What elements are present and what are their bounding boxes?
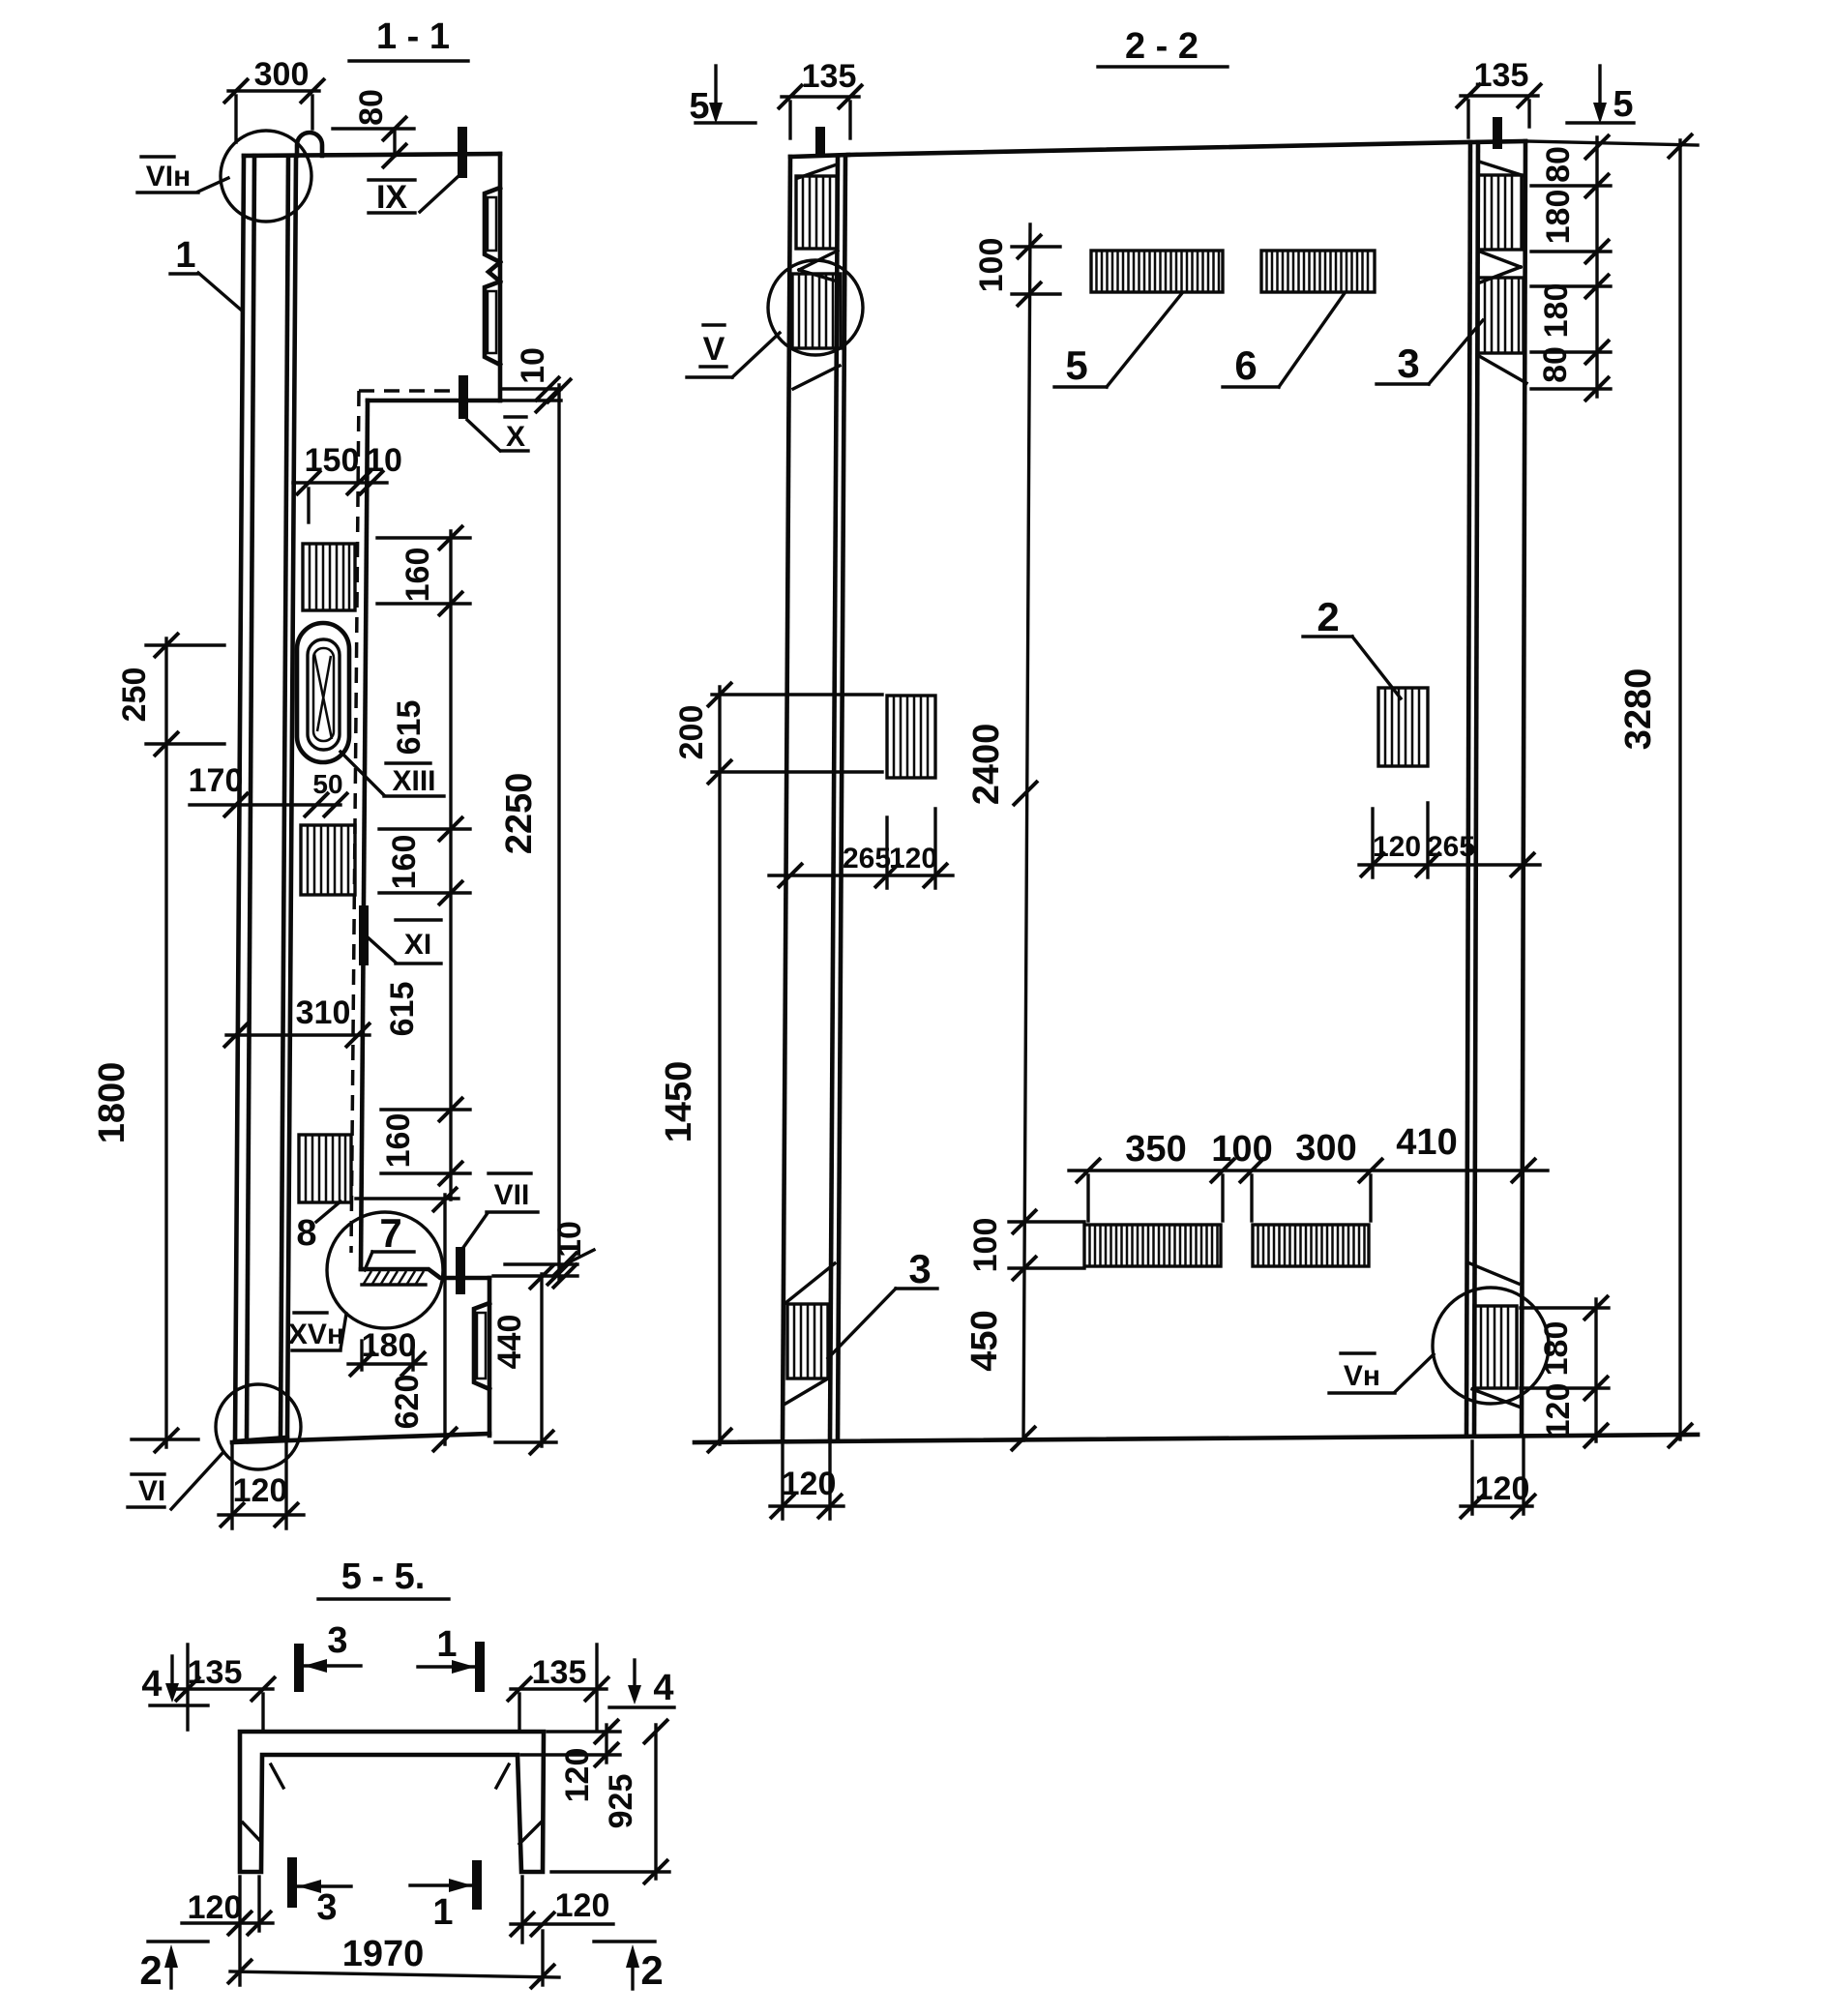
svg-text:120: 120 (1475, 1470, 1530, 1507)
svg-text:120: 120 (555, 1887, 610, 1924)
svg-text:4: 4 (141, 1664, 162, 1705)
svg-text:1800: 1800 (92, 1062, 133, 1144)
svg-text:100: 100 (1211, 1129, 1272, 1170)
svg-text:7: 7 (379, 1210, 401, 1256)
svg-text:50: 50 (312, 769, 342, 799)
svg-text:5: 5 (1613, 84, 1633, 125)
svg-text:620: 620 (389, 1375, 426, 1430)
svg-text:VIн: VIн (146, 161, 191, 193)
svg-text:120: 120 (782, 1466, 837, 1502)
svg-text:80: 80 (1537, 346, 1574, 383)
svg-text:2 - 2: 2 - 2 (1125, 26, 1199, 67)
svg-text:180: 180 (1538, 283, 1575, 339)
svg-text:120: 120 (1540, 1383, 1577, 1438)
svg-text:2: 2 (139, 1947, 162, 1993)
svg-text:1450: 1450 (659, 1061, 699, 1143)
svg-text:2: 2 (640, 1947, 663, 1993)
svg-text:450: 450 (964, 1310, 1005, 1371)
svg-text:3280: 3280 (1618, 668, 1659, 751)
svg-text:5: 5 (1065, 342, 1087, 388)
svg-text:2: 2 (1317, 594, 1339, 639)
svg-text:135: 135 (802, 58, 857, 95)
svg-text:10: 10 (551, 1221, 588, 1258)
svg-text:X: X (506, 421, 525, 453)
svg-text:265: 265 (843, 843, 891, 875)
svg-text:3: 3 (908, 1246, 931, 1291)
svg-text:XI: XI (404, 929, 431, 961)
svg-text:160: 160 (386, 835, 423, 890)
svg-text:10: 10 (366, 442, 402, 479)
svg-text:XVн: XVн (288, 1319, 344, 1350)
svg-text:180: 180 (1538, 1321, 1575, 1377)
svg-text:120: 120 (233, 1472, 288, 1509)
svg-text:3: 3 (316, 1887, 337, 1928)
svg-text:180: 180 (362, 1327, 417, 1364)
svg-text:VII: VII (494, 1179, 530, 1211)
svg-text:135: 135 (1474, 57, 1529, 94)
svg-text:3: 3 (327, 1620, 347, 1661)
svg-text:120: 120 (889, 843, 937, 875)
svg-text:VI: VI (138, 1475, 165, 1507)
svg-text:XIII: XIII (392, 765, 435, 797)
svg-text:8: 8 (296, 1213, 316, 1254)
svg-text:120: 120 (1373, 831, 1421, 863)
svg-text:IX: IX (376, 179, 407, 216)
svg-text:3: 3 (1397, 341, 1419, 386)
svg-text:10: 10 (515, 347, 551, 384)
svg-text:80: 80 (1540, 146, 1577, 183)
svg-text:Vн: Vн (1344, 1360, 1380, 1392)
svg-text:170: 170 (189, 762, 244, 799)
svg-text:1: 1 (436, 1624, 457, 1665)
svg-text:135: 135 (188, 1654, 243, 1691)
svg-text:265: 265 (1427, 831, 1475, 863)
svg-text:160: 160 (400, 548, 436, 603)
svg-text:300: 300 (254, 56, 310, 93)
svg-text:250: 250 (116, 667, 153, 723)
svg-text:5: 5 (689, 86, 709, 127)
svg-text:150: 150 (305, 442, 360, 479)
svg-text:1 - 1: 1 - 1 (376, 16, 450, 57)
svg-text:310: 310 (296, 994, 351, 1031)
svg-text:4: 4 (653, 1668, 673, 1708)
svg-text:V: V (703, 331, 725, 368)
svg-text:120: 120 (188, 1889, 243, 1926)
svg-text:160: 160 (380, 1113, 417, 1169)
svg-text:135: 135 (532, 1654, 587, 1691)
svg-text:80: 80 (353, 89, 390, 126)
svg-text:1: 1 (432, 1892, 453, 1933)
svg-text:5 - 5.: 5 - 5. (341, 1556, 426, 1597)
svg-text:120: 120 (559, 1748, 596, 1803)
svg-text:180: 180 (1540, 190, 1577, 245)
svg-text:350: 350 (1125, 1129, 1186, 1170)
svg-text:2250: 2250 (499, 773, 540, 855)
svg-text:615: 615 (391, 700, 428, 756)
svg-text:100: 100 (967, 1218, 1004, 1273)
svg-text:925: 925 (603, 1774, 639, 1829)
svg-text:440: 440 (491, 1315, 528, 1370)
svg-text:300: 300 (1295, 1128, 1356, 1169)
svg-text:1970: 1970 (342, 1934, 425, 1974)
svg-text:100: 100 (973, 238, 1010, 293)
svg-text:6: 6 (1234, 342, 1257, 388)
svg-text:2400: 2400 (966, 724, 1007, 806)
svg-text:615: 615 (384, 982, 421, 1037)
svg-text:1: 1 (175, 235, 195, 276)
svg-text:410: 410 (1396, 1122, 1457, 1163)
svg-text:200: 200 (673, 705, 710, 760)
